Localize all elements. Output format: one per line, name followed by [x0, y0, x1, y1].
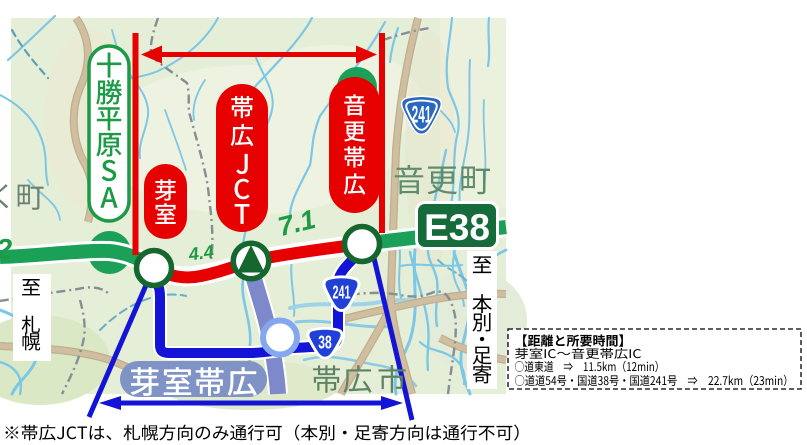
svg-text:241: 241: [412, 101, 432, 128]
svg-text:241: 241: [333, 284, 351, 303]
svg-text:2: 2: [0, 234, 12, 266]
svg-text:4.4: 4.4: [186, 241, 215, 264]
svg-text:E38: E38: [424, 207, 490, 248]
svg-text:38: 38: [318, 333, 332, 353]
